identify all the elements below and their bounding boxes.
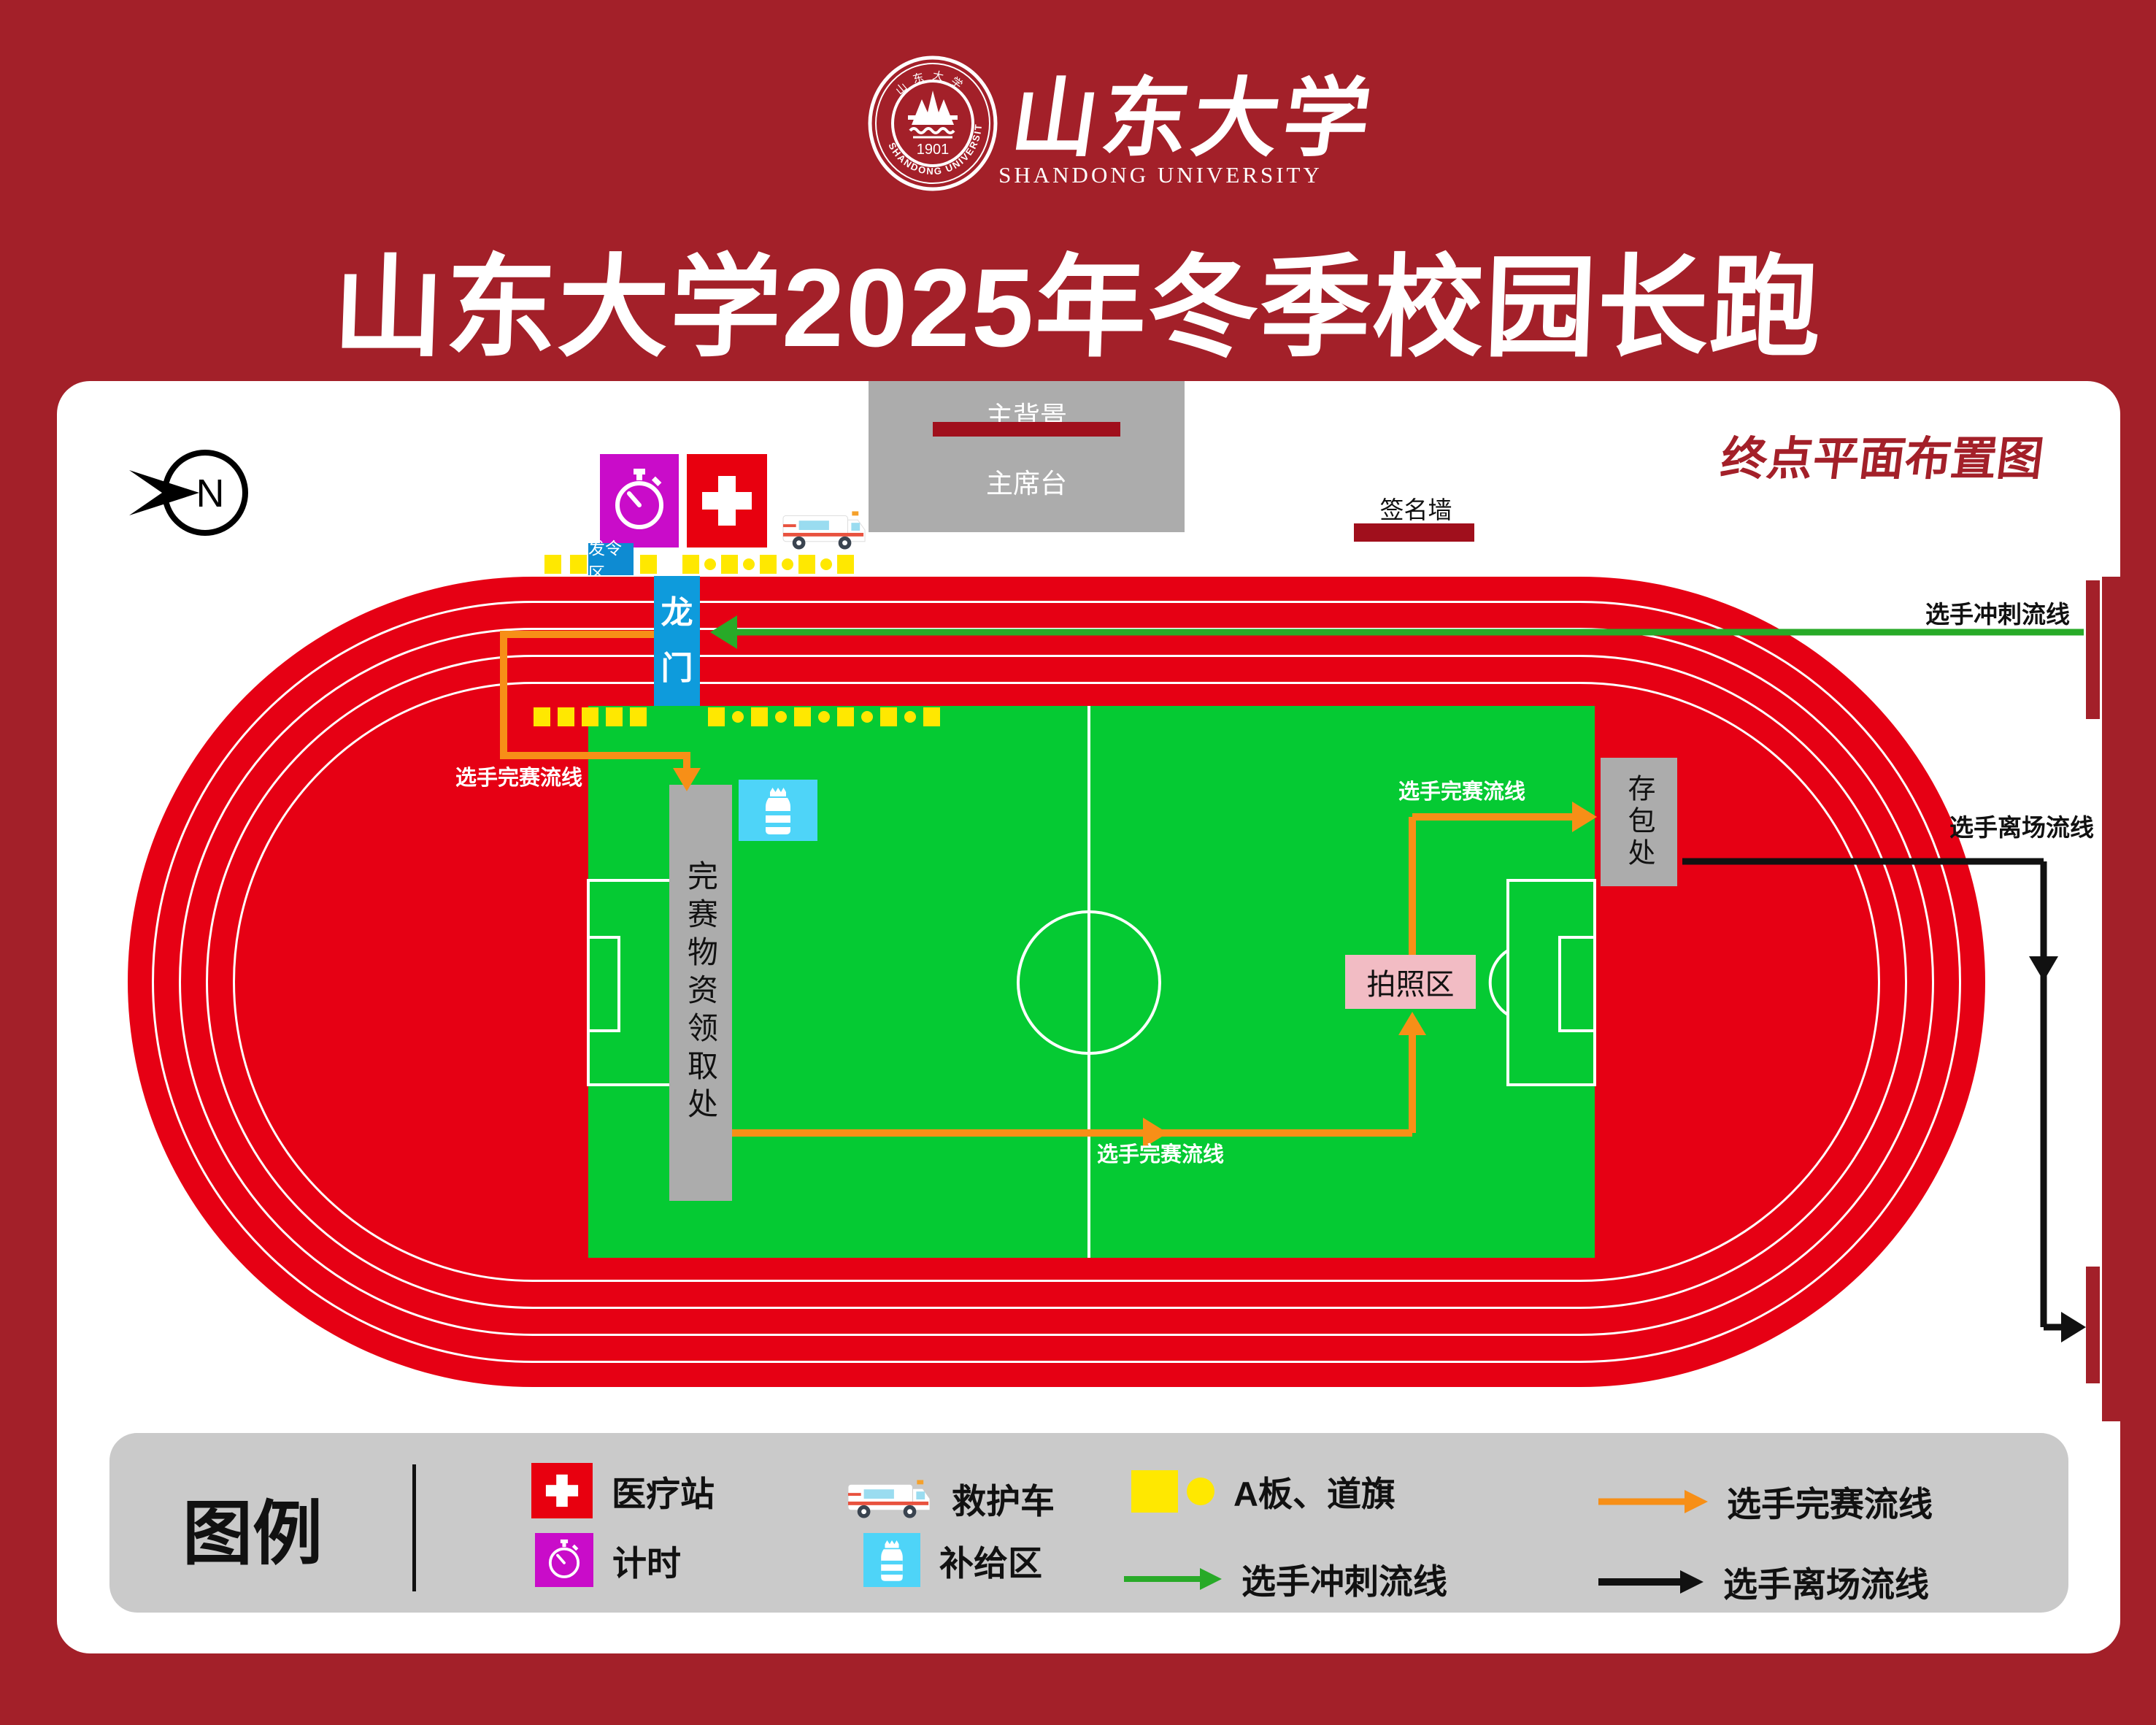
ambulance-icon (782, 508, 868, 552)
a-board-marker (923, 707, 940, 726)
a-board-marker (837, 707, 854, 726)
legend-label: 计时 (612, 1535, 681, 1586)
legend-panel: 图例 医疗站 救护车 (109, 1433, 2068, 1613)
stopwatch-icon (613, 467, 666, 534)
legend-item-medical: 医疗站 (531, 1463, 715, 1518)
finish-gate: 龙 门 (654, 576, 700, 706)
flag-marker (743, 558, 755, 570)
flag-dot-icon (1187, 1478, 1214, 1505)
svg-text:山东大学: 山东大学 (893, 69, 970, 98)
finish-gate-label: 龙 门 (661, 585, 693, 696)
photo-area-label: 拍照区 (1367, 961, 1455, 1003)
bag-storage-area: 存包处 (1601, 758, 1677, 886)
seal-waves-icon (910, 128, 954, 133)
signature-wall-bar (1354, 523, 1474, 542)
ambulance-icon (847, 1477, 933, 1521)
a-board-marker (708, 707, 725, 726)
university-wordmark-en: SHANDONG UNIVERSITY (971, 162, 1350, 188)
legend-title: 图例 (182, 1477, 323, 1578)
track-marker-row (544, 555, 587, 574)
legend-item-supply: 补给区 (863, 1533, 1042, 1587)
stage-area: 主背景 主席台 (869, 381, 1185, 532)
a-board-marker (682, 555, 699, 574)
seal-ring-top-text: 山东大学 (893, 69, 970, 98)
bag-storage-label: 存包处 (1619, 774, 1659, 870)
a-board-marker (798, 555, 815, 574)
a-board-marker (640, 555, 657, 574)
legend-label: 选手冲刺流线 (1241, 1553, 1447, 1604)
plan-title: 终点平面布置图 (1528, 422, 2047, 488)
start-area-sign: 发令区 (588, 543, 634, 575)
a-board-marker (630, 707, 647, 726)
stopwatch-icon (535, 1533, 593, 1587)
supply-station-marker (739, 780, 817, 841)
legend-item-aboard: A板、道旗 (1131, 1466, 1395, 1516)
legend-label: 选手完赛流线 (1727, 1476, 1933, 1526)
a-board-marker (721, 555, 738, 574)
a-board-marker (534, 707, 550, 726)
track-marker-row (534, 707, 647, 726)
medical-station-marker (687, 454, 767, 548)
header: SHANDONG UNIVERSITY 山东大学 1901 山东大学 SHAND… (0, 0, 2156, 219)
flag-marker (861, 711, 873, 723)
finish-flow-label: 选手完赛流线 (1097, 1137, 1224, 1168)
flag-marker (820, 558, 832, 570)
a-board-marker (837, 555, 854, 574)
timing-station-marker (600, 454, 679, 548)
a-board-marker (570, 555, 587, 574)
flag-marker (782, 558, 793, 570)
legend-item-timing: 计时 (535, 1533, 681, 1587)
flag-marker (704, 558, 716, 570)
supply-bottle-icon (761, 785, 795, 836)
a-board-marker (582, 707, 598, 726)
signature-wall-label: 签名墙 (1354, 491, 1478, 526)
finish-supplies-label: 完赛物资领取处 (679, 860, 723, 1126)
right-boundary-wall (2102, 577, 2156, 1421)
a-board-marker (544, 555, 561, 574)
a-board-icon (1131, 1470, 1178, 1513)
legend-label: A板、道旗 (1233, 1466, 1395, 1516)
a-board-marker (760, 555, 777, 574)
legend-item-exit: 选手离场流线 (1598, 1556, 1929, 1607)
track-marker-row (708, 707, 940, 726)
exit-arrow-icon (1598, 1570, 1704, 1594)
stage-backdrop-bar (933, 422, 1120, 437)
finish-supplies-area: 完赛物资领取处 (669, 785, 732, 1201)
a-board-marker (606, 707, 623, 726)
sprint-arrow-icon (1124, 1567, 1223, 1591)
flag-marker (732, 711, 744, 723)
exit-gate-pillar (2086, 580, 2100, 719)
svg-text:N: N (196, 472, 225, 515)
legend-item-ambulance: 救护车 (847, 1473, 1055, 1524)
finish-flow-label: 选手完赛流线 (455, 761, 582, 791)
flag-marker (904, 711, 916, 723)
flag-marker (818, 711, 830, 723)
legend-label: 救护车 (952, 1473, 1055, 1524)
compass-north-icon: N (109, 437, 270, 561)
flag-marker (775, 711, 787, 723)
legend-item-finish: 选手完赛流线 (1598, 1476, 1933, 1526)
finish-flow-label: 选手完赛流线 (1398, 775, 1525, 805)
event-poster: SHANDONG UNIVERSITY 山东大学 1901 山东大学 SHAND… (0, 0, 2156, 1725)
a-board-marker (794, 707, 811, 726)
a-board-marker (751, 707, 768, 726)
sprint-flow-label: 选手冲刺流线 (1925, 595, 2070, 630)
university-wordmark-cn: 山东大学 (1006, 48, 1314, 158)
medical-station-icon (531, 1463, 593, 1518)
seal-year: 1901 (917, 142, 950, 158)
legend-label: 医疗站 (612, 1466, 715, 1516)
track-marker-row (640, 555, 657, 574)
track-marker-row (682, 555, 854, 574)
event-title: 山东大学2025年冬季校园长跑 (0, 218, 2156, 378)
legend-item-sprint: 选手冲刺流线 (1124, 1553, 1447, 1604)
legend-divider (412, 1464, 416, 1591)
finish-arrow-icon (1598, 1489, 1708, 1514)
exit-flow-label: 选手离场流线 (1949, 808, 2094, 843)
exit-gate-pillar (2086, 1267, 2100, 1383)
a-board-marker (558, 707, 574, 726)
supply-bottle-icon (863, 1533, 920, 1587)
rostrum-label: 主席台 (869, 461, 1185, 501)
legend-label: 补给区 (939, 1535, 1042, 1586)
photo-area: 拍照区 (1345, 955, 1476, 1009)
medical-cross-icon (698, 472, 756, 530)
legend-label: 选手离场流线 (1723, 1556, 1929, 1607)
a-board-marker (880, 707, 897, 726)
